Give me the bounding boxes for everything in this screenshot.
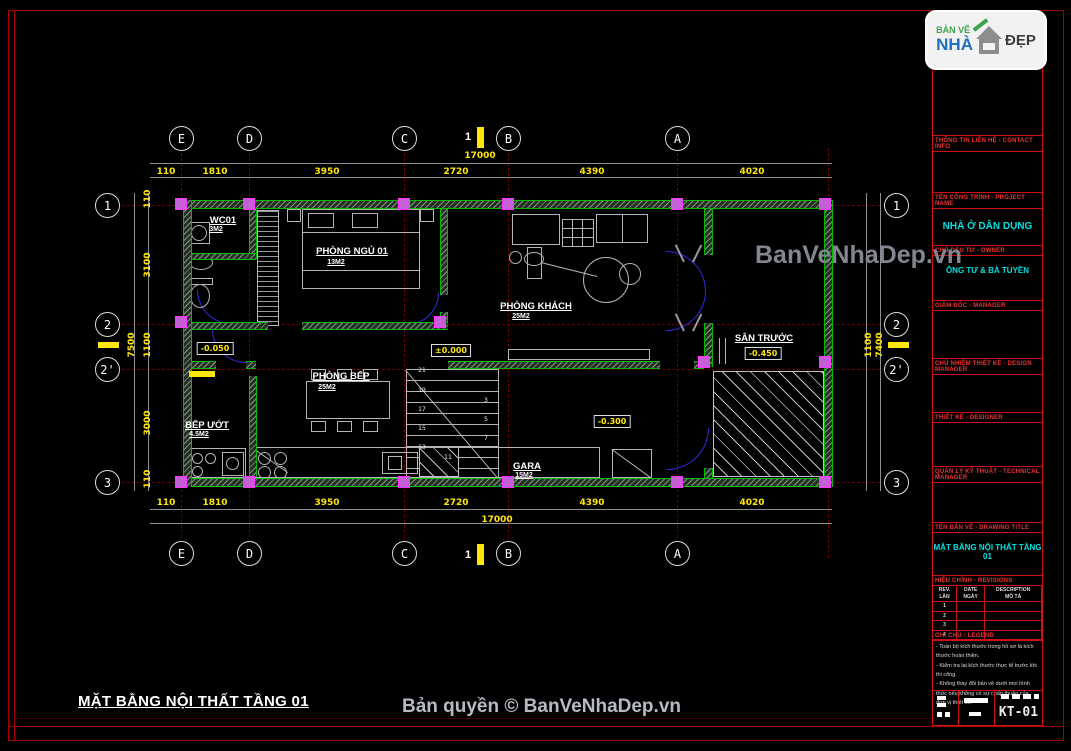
grid-bubble-D-bottom: D (237, 541, 262, 566)
gate-line (725, 338, 726, 364)
rev-col-header: REV.LẦN (933, 586, 957, 602)
titleblock-section-drawing-title: TÊN BẢN VẼ - DRAWING TITLE MẶT BẰNG NỘI … (933, 523, 1042, 576)
fixture-toilet (190, 284, 210, 308)
grid-axis (112, 369, 895, 370)
grid-bubble-1-right: 1 (884, 193, 909, 218)
dim-line (150, 163, 832, 164)
furniture-desk-chair (524, 252, 544, 266)
plant-icon (680, 312, 696, 330)
grid-bubble-3-right: 3 (884, 470, 909, 495)
wall-segment (440, 209, 448, 295)
furniture-shelf-line (582, 219, 583, 247)
grid-bubble-B-bottom: B (496, 541, 521, 566)
room-label-garage: GARA (513, 461, 541, 472)
furniture-burner (192, 453, 203, 464)
titleblock-header: CHỦ NHIỆM THIẾT KẾ - DESIGN MANAGER (933, 359, 1042, 375)
titleblock-section-designer: THIẾT KẾ - DESIGNER (933, 413, 1042, 467)
grid-bubble-3-left: 3 (95, 470, 120, 495)
dim-label: 4390 (579, 498, 604, 508)
grid-axis (181, 148, 182, 558)
furniture-burner (258, 452, 271, 465)
copyright-text: Bản quyền © BanVeNhaDep.vn (40, 696, 1043, 718)
dim-label: 110 (143, 190, 153, 209)
furniture-chair (363, 421, 378, 432)
stair-step-number: 3 (484, 396, 488, 404)
gate-line (719, 338, 720, 364)
furniture-shelf-line (562, 237, 594, 238)
dim-label: 1810 (202, 167, 227, 177)
room-label-wetkitchen: BẾP ƯỚT (185, 420, 229, 431)
stair-step-number: 13 (418, 443, 426, 451)
furniture-shelf (562, 219, 594, 247)
stair-step-number: 15 (418, 424, 426, 432)
level-marker-yard: -0.450 (745, 347, 782, 360)
grid-bubble-2-right: 2 (884, 312, 909, 337)
logo-text-dep: ĐẸP (1005, 32, 1036, 49)
column-marker (244, 199, 254, 209)
room-area-wc: 3M2 (209, 226, 223, 233)
dim-label: 2720 (443, 498, 468, 508)
fixture-washer-drum (191, 225, 207, 241)
dim-label: 7400 (875, 332, 885, 357)
column-marker (503, 199, 513, 209)
dim-label: 3950 (314, 167, 339, 177)
wall-segment (704, 468, 713, 478)
furniture-wardrobe (257, 210, 279, 326)
dim-label: 4020 (739, 498, 764, 508)
stair-step-number: 7 (484, 434, 488, 442)
rev-cell (957, 602, 985, 612)
furniture-counter (252, 447, 600, 478)
furniture-sink-basin (388, 456, 402, 470)
banvenhadep-logo: BẢN VẼ NHÀ ĐẸP (927, 12, 1045, 68)
dim-line (150, 177, 832, 178)
section-flag (888, 342, 909, 348)
stair-step-number: 17 (418, 405, 426, 413)
grid-bubble-B-top: B (496, 126, 521, 151)
project-name: NHÀ Ở DÂN DỤNG (933, 221, 1042, 232)
rev-row-number: 1 (933, 602, 957, 612)
legend-note: - Kiểm tra lại kích thước thực tế trước … (936, 662, 1039, 681)
furniture-burner (205, 453, 216, 464)
titleblock-header: GIÁM ĐỐC - MANAGER (933, 301, 1042, 311)
section-flag (477, 127, 484, 148)
furniture-chaise (512, 214, 560, 245)
grid-bubble-D-top: D (237, 126, 262, 151)
sheet-divider-line (14, 718, 1043, 719)
level-marker-garage: -0.300 (594, 415, 631, 428)
furniture-sofa-line (622, 214, 623, 243)
wall-segment (192, 361, 216, 369)
grid-bubble-E-bottom: E (169, 541, 194, 566)
grid-bubble-A-bottom: A (665, 541, 690, 566)
wall-segment (249, 376, 257, 477)
room-label-bedroom: PHÒNG NGỦ 01 (316, 246, 388, 257)
furniture-pillow (308, 213, 334, 228)
room-area-garage: 15M2 (515, 472, 533, 479)
column-marker (399, 199, 409, 209)
drawing-title: MẶT BẰNG NỘI THẤT TẦNG 01 (933, 543, 1042, 561)
furniture-chair (337, 421, 352, 432)
titleblock-section-revisions: HIỆU CHỈNH - REVISIONS REV.LẦN DATENGÀY … (933, 576, 1042, 631)
titleblock-section-design-manager: CHỦ NHIỆM THIẾT KẾ - DESIGN MANAGER (933, 359, 1042, 413)
furniture-burner (192, 466, 203, 477)
stair-step-number: 19 (418, 386, 426, 394)
dim-label: 2720 (443, 167, 468, 177)
rev-col-header: DATENGÀY (957, 586, 985, 602)
furniture-chair (311, 421, 326, 432)
titleblock-header: HIỆU CHỈNH - REVISIONS (933, 576, 1042, 586)
column-marker (244, 477, 254, 487)
dim-total-label: 7500 (127, 332, 137, 357)
column-marker (672, 199, 682, 209)
grid-bubble-E-top: E (169, 126, 194, 151)
section-label: 1 (465, 131, 471, 143)
titleblock-header: TÊN BẢN VẼ - DRAWING TITLE (933, 523, 1042, 533)
furniture-nightstand (287, 209, 301, 222)
dim-total-label: 17000 (481, 515, 512, 525)
rev-cell (957, 621, 985, 631)
grid-bubble-1-left: 1 (95, 193, 120, 218)
stair-step-number: 21 (418, 366, 426, 374)
furniture-nightstand (420, 209, 434, 222)
dim-total-label: 17000 (464, 151, 495, 161)
wall-segment (448, 361, 660, 369)
room-area-kitchen: 25M2 (318, 384, 336, 391)
column-marker (176, 199, 186, 209)
column-marker (399, 477, 409, 487)
grid-bubble-C-bottom: C (392, 541, 417, 566)
legend-note: - Toàn bộ kích thước trong hồ sơ là kích… (936, 643, 1039, 662)
level-marker-kitchen: ±0.000 (431, 344, 471, 357)
furniture-pillow (352, 213, 378, 228)
titleblock-section-contact: THÔNG TIN LIÊN HỆ - CONTACT INFO (933, 136, 1042, 193)
dim-label: 110 (157, 167, 176, 177)
section-label: 1 (465, 549, 471, 561)
grid-bubble-2-left: 2 (95, 312, 120, 337)
wall-segment (704, 209, 713, 255)
dim-label: 3100 (143, 252, 153, 277)
room-area-bedroom: 13M2 (327, 259, 345, 266)
column-marker (435, 317, 445, 327)
grid-axis (677, 148, 678, 558)
dim-label: 1100 (143, 332, 153, 357)
stair-step-number: 11 (444, 453, 452, 461)
rev-cell (985, 612, 1042, 622)
dim-label: 4390 (579, 167, 604, 177)
furniture-tv-cabinet (508, 349, 650, 360)
titleblock-header: GHI CHÚ - LEGEND (933, 631, 1042, 641)
wall-segment (302, 322, 448, 330)
furniture-shelf-line (562, 228, 594, 229)
titleblock-section-manager: GIÁM ĐỐC - MANAGER (933, 301, 1042, 359)
dim-label: 4020 (739, 167, 764, 177)
dim-label: 3000 (143, 410, 153, 435)
titleblock-section-project: TÊN CÔNG TRÌNH - PROJECT NAME NHÀ Ở DÂN … (933, 193, 1042, 246)
wall-segment (249, 209, 257, 259)
titleblock-header: THIẾT KẾ - DESIGNER (933, 413, 1042, 423)
wall-segment (192, 253, 256, 260)
furniture-bed-line (302, 270, 420, 271)
furniture-lamp (509, 251, 522, 264)
column-marker (672, 477, 682, 487)
furniture-bed-line (302, 232, 420, 233)
column-marker (176, 317, 186, 327)
dim-label: 110 (143, 470, 153, 489)
dim-label: 110 (157, 498, 176, 508)
wall-segment (246, 361, 256, 369)
titleblock-section-technical: QUẢN LÝ KỸ THUẬT - TECHNICAL MANAGER (933, 467, 1042, 523)
room-label-yard: SÂN TRƯỚC (735, 333, 793, 344)
room-area-wetkitchen: 4.5M2 (189, 431, 208, 438)
column-marker (503, 477, 513, 487)
rev-cell (985, 621, 1042, 631)
dim-label: 1810 (202, 498, 227, 508)
plant-icon (680, 243, 696, 261)
rev-col-header: DESCRIPTIONMÔ TẢ (985, 586, 1042, 602)
grid-bubble-C-top: C (392, 126, 417, 151)
garage-ramp-hatch (713, 371, 824, 477)
title-block: TƯ VẤN - CONSULTANT BẢN VẼ NHÀ ĐẸP THÔNG… (932, 25, 1043, 726)
room-label-wc: WC01 (210, 215, 236, 226)
dim-label: 1100 (864, 332, 874, 357)
room-area-living: 25M2 (512, 313, 530, 320)
furniture-wet-sink-basin (226, 457, 239, 470)
titleblock-header: QUẢN LÝ KỸ THUẬT - TECHNICAL MANAGER (933, 467, 1042, 483)
wall-segment (192, 322, 268, 330)
house-icon (976, 25, 1002, 55)
rev-row-number: 2 (933, 612, 957, 622)
level-marker-hall: -0.050 (197, 342, 234, 355)
drawing-sheet: BanVeNhaDep.vn 110 1810 3950 2720 4390 4… (0, 0, 1071, 751)
furniture-shelf-line (572, 219, 573, 247)
rev-row-number: 3 (933, 621, 957, 631)
watermark-text: BanVeNhaDep.vn (755, 241, 962, 270)
section-flag (477, 544, 484, 565)
sheet-inner-border-left (14, 10, 15, 741)
logo-text-banve: BẢN VẼ (936, 25, 973, 35)
dim-line (150, 509, 832, 510)
wall-segment (183, 200, 192, 487)
column-marker (820, 477, 830, 487)
section-flag (98, 342, 119, 348)
grid-bubble-2p-left: 2' (95, 357, 120, 382)
titleblock-header: THÔNG TIN LIÊN HỆ - CONTACT INFO (933, 136, 1042, 152)
room-label-living: PHÒNG KHÁCH (500, 301, 572, 312)
room-label-kitchen: PHÒNG BẾP (312, 371, 369, 382)
grid-bubble-A-top: A (665, 126, 690, 151)
titleblock-section-consultant: TƯ VẤN - CONSULTANT BẢN VẼ NHÀ ĐẸP (933, 26, 1042, 136)
column-marker (820, 357, 830, 367)
titleblock-section-legend: GHI CHÚ - LEGEND - Toàn bộ kích thước tr… (933, 631, 1042, 691)
column-marker (699, 357, 709, 367)
column-marker (820, 199, 830, 209)
grid-bubble-2p-right: 2' (884, 357, 909, 382)
section-flag (189, 371, 215, 377)
dim-label: 3950 (314, 498, 339, 508)
furniture-burner (274, 452, 287, 465)
logo-text-nha: NHÀ (936, 35, 973, 55)
furniture-side-table (619, 263, 641, 285)
stair-step-number: 5 (484, 415, 488, 423)
sheet-inner-border-bottom (8, 726, 1064, 727)
column-marker (176, 477, 186, 487)
rev-cell (957, 612, 985, 622)
rev-cell (985, 602, 1042, 612)
titleblock-header: TÊN CÔNG TRÌNH - PROJECT NAME (933, 193, 1042, 209)
